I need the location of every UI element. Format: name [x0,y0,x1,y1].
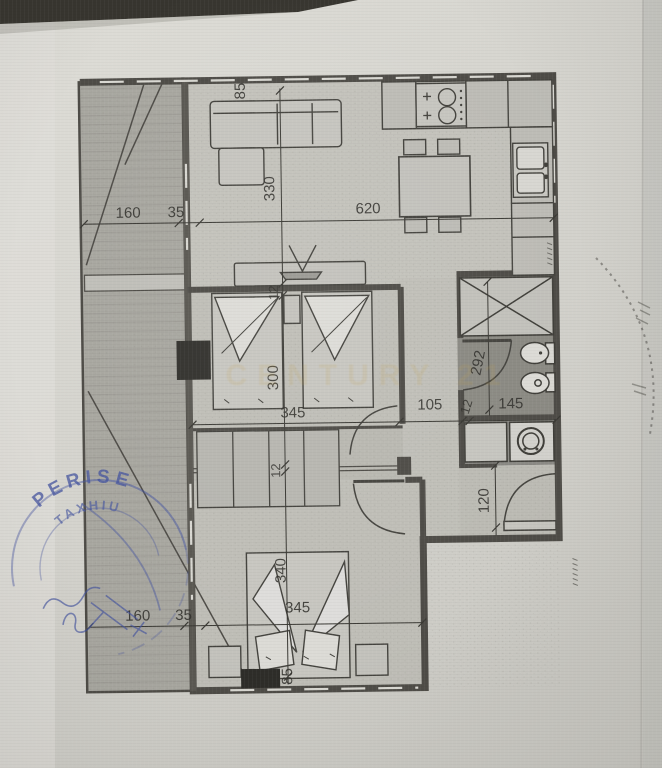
dim-label-balcony-35-top: 35 [167,204,184,221]
dim-label-balcony-160-bottom: 160 [125,607,150,624]
paper-left-edge [0,10,55,768]
bedroom1-right-wall [401,287,403,424]
kitchen-counter-top [382,80,553,129]
dim-label-bedroom2-340: 340 [272,558,289,583]
nightstand-between-beds [284,295,300,323]
nightstand-right [356,644,388,675]
toilet-bowl [520,342,548,363]
radiator-dark [241,669,280,689]
bidet [521,372,555,393]
pillow-right [301,630,340,671]
bedroom2-door-leaf [353,481,404,482]
dim-label-living-620: 620 [355,200,380,217]
dim-label-bedroom1-345: 345 [280,404,305,421]
floor-plan-photo: 160 35 620 85 330 12 300 345 105 12 145 … [0,0,662,768]
sofa-cushion-1 [277,104,278,145]
washing-machine [510,422,555,462]
door-jamb [397,457,411,475]
balcony-planter [84,274,187,291]
chair-1 [404,140,426,155]
shower [460,277,554,336]
dim-label-wall-12-a: 12 [266,285,281,300]
sofa-chaise [219,148,265,186]
sofa-cushion-2 [312,103,313,144]
dining-table [399,156,471,217]
counter-right-div-1 [511,203,553,204]
dim-label-balcony-160-top: 160 [115,204,140,221]
dim-label-balcony-35-bottom: 35 [175,607,192,624]
hall-left-wall [422,480,423,540]
sofa-body [210,100,342,149]
floor-plan-svg: 160 35 620 85 330 12 300 345 105 12 145 … [0,0,662,768]
laundry-cabinet [465,422,508,462]
dim-label-bath-145: 145 [498,395,523,412]
tv-screen [280,272,321,280]
dim-label-bottom-85: 85 [279,668,296,685]
bedroom1-top-wall [188,287,401,290]
laundry-nook [465,422,555,462]
dim-label-living-330: 330 [261,176,278,201]
top-wall-balcony [80,81,185,82]
bathroom-door-leaf [462,340,511,341]
dim-label-top-85: 85 [232,83,249,100]
dim-label-hall-120: 120 [475,488,492,513]
stove [416,83,467,127]
dim-label-corridor-105: 105 [417,396,442,413]
toilet [520,342,554,364]
dim-label-bedroom2-345: 345 [285,599,310,616]
nightstand-left [209,646,241,677]
counter-right-div-2 [512,237,554,238]
counter-div-3 [508,80,509,127]
sink-basin-1 [517,147,544,169]
wall-wardrobe-dark [176,341,211,380]
sink-basin-2 [517,173,544,193]
kitchen-sink [513,143,549,197]
laundry-bottom-wall [459,466,497,467]
chair-2 [438,139,460,154]
watermark-century21: CENTURY 21 [225,359,510,392]
dim-label-wall-12-c: 12 [268,463,283,478]
entry-door-leaf [504,521,556,531]
